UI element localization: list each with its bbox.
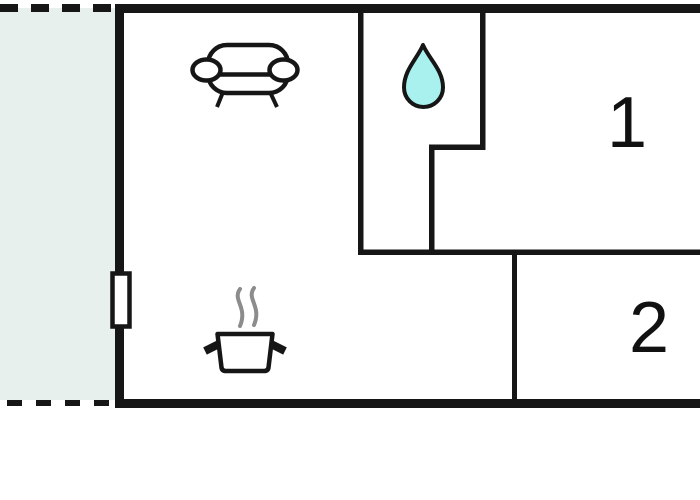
steam-icon [252,288,257,325]
wall-hall-bedroom2 [512,255,517,399]
floor-plan-drawing: 1 2 [0,0,700,500]
wall-left [115,4,124,408]
room-2-label: 2 [629,288,669,368]
water-drop-icon [404,45,443,107]
pot-body [218,334,273,371]
sofa-armrest-left [193,60,221,81]
wall-bathroom-bedroom1-lower [429,145,435,256]
sofa-armrest-right [270,60,298,81]
terrace-area [0,8,116,400]
wall-living-bathroom [358,13,364,255]
wall-horizontal-middle [358,250,700,256]
window-marker [113,274,130,327]
sofa-leg-left [217,92,223,107]
wall-bathroom-step [429,145,486,151]
wall-bathroom-bedroom1-upper [480,13,486,150]
cooking-pot-icon [205,288,285,371]
steam-icon [238,289,243,326]
wall-bottom [115,399,700,408]
wall-top [115,4,700,13]
sofa-icon [193,45,298,107]
floor-plan: 1 2 [0,0,700,500]
room-1-label: 1 [607,83,647,163]
